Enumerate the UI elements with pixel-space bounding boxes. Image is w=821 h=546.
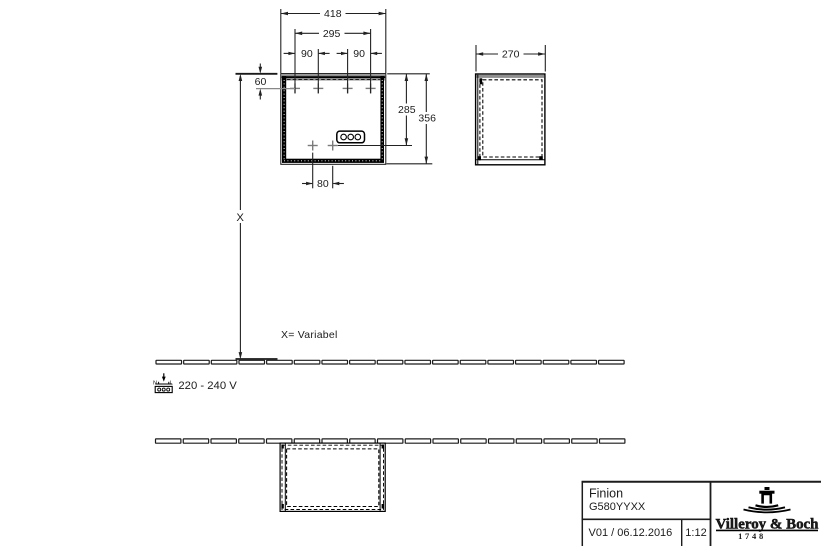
svg-text:285: 285 [398,104,416,116]
svg-text:90: 90 [301,48,313,60]
svg-text:270: 270 [502,49,520,61]
svg-text:295: 295 [323,28,341,40]
svg-text:60: 60 [255,76,267,88]
svg-text:356: 356 [418,113,436,125]
svg-text:418: 418 [324,8,342,20]
svg-text:V01 / 06.12.2016: V01 / 06.12.2016 [589,527,673,539]
svg-text:220 - 240 V: 220 - 240 V [178,380,237,392]
svg-text:G580YYXX: G580YYXX [589,501,646,513]
svg-text:X: X [236,212,244,224]
svg-text:Finion: Finion [589,486,623,500]
svg-text:80: 80 [317,178,329,190]
svg-text:1:12: 1:12 [685,527,706,539]
svg-text:X= Variabel: X= Variabel [281,329,338,341]
svg-text:90: 90 [353,48,365,60]
svg-text:1748: 1748 [738,531,766,541]
